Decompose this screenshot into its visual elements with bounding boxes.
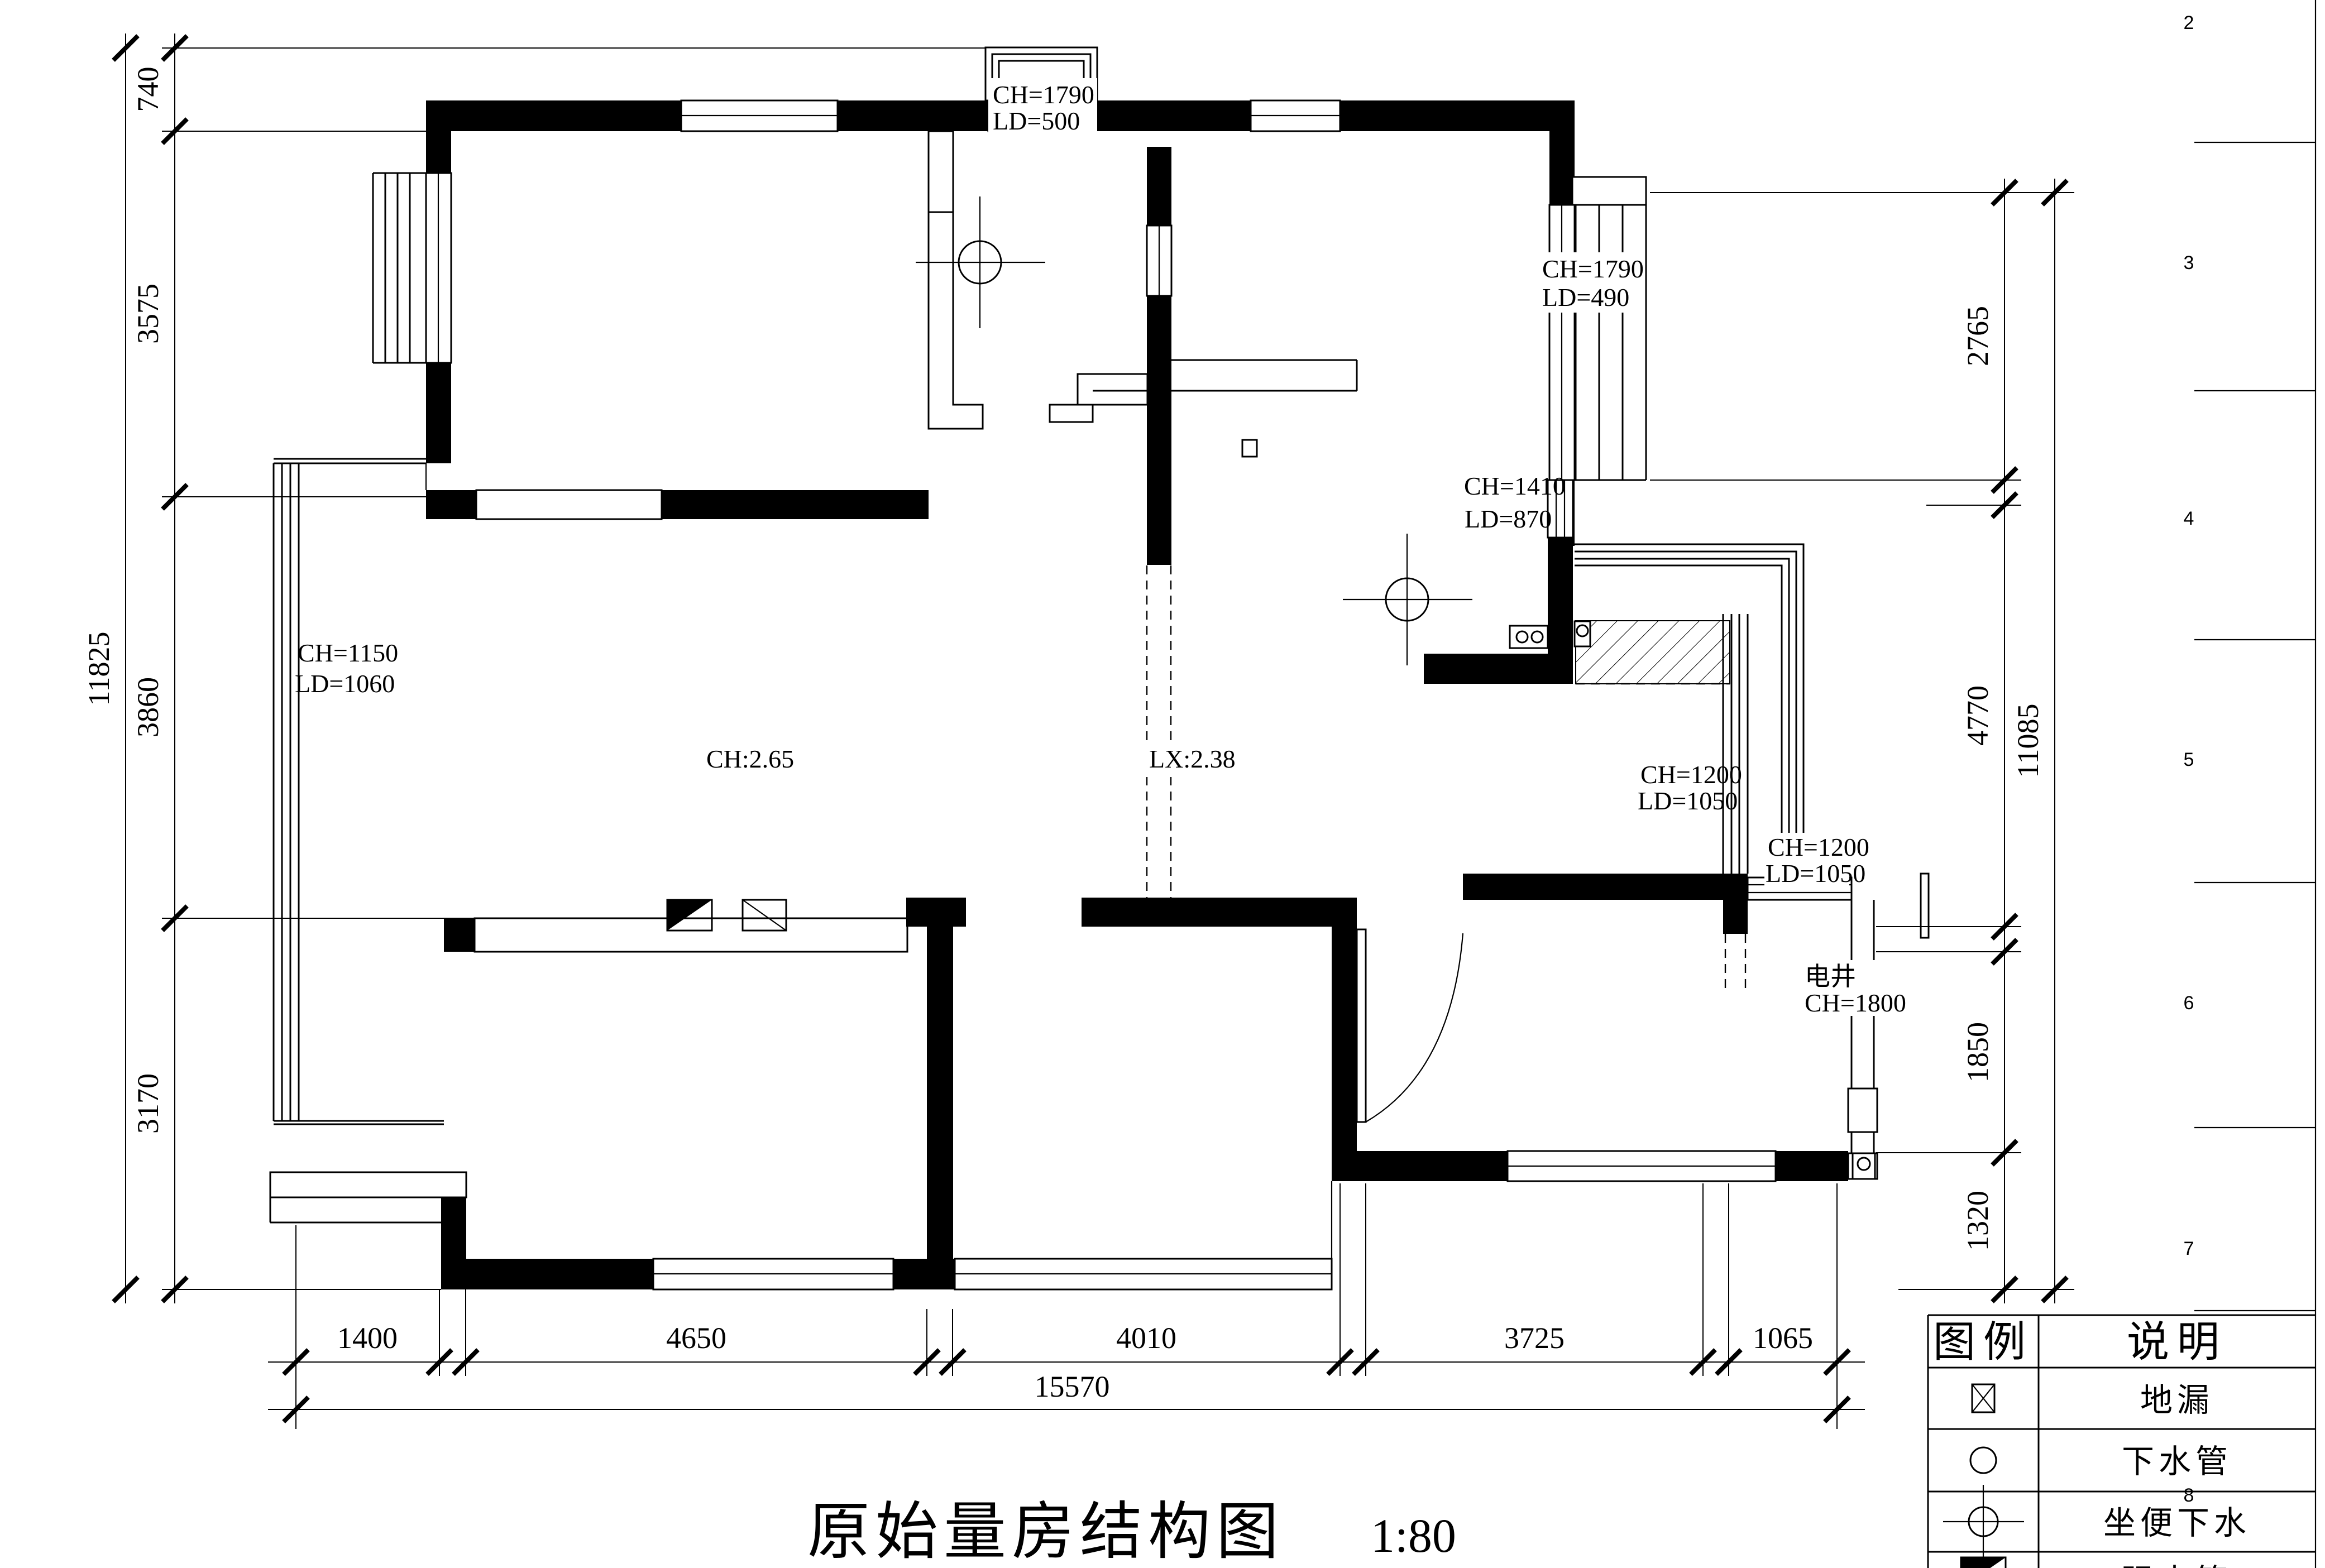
window-bottom-left	[653, 1259, 893, 1289]
window-top-left	[681, 100, 838, 131]
legend-row-label: 坐便下水	[2103, 1505, 2251, 1541]
label-window-top-center-ch: CH=1790	[993, 80, 1094, 109]
legend-header-symbol: 图例	[1933, 1319, 2034, 1366]
legend-row-label: 强电箱	[2122, 1563, 2232, 1568]
dim-label: 1400	[337, 1321, 398, 1355]
dim-label: 3860	[131, 677, 165, 737]
label-window-left-ld: LD=1060	[295, 669, 395, 698]
dim-label: 1065	[1753, 1321, 1813, 1355]
sheet-row-number: 2	[2184, 12, 2194, 33]
sheet-row-number: 4	[2184, 508, 2194, 529]
dim-label: 3725	[1504, 1321, 1565, 1355]
sheet-row-number: 7	[2184, 1238, 2194, 1259]
sheet-row-number: 5	[2184, 749, 2194, 770]
window-right-bay-wall	[1549, 205, 1575, 480]
dim-label: 1320	[1961, 1191, 1994, 1251]
dim-label: 4010	[1116, 1321, 1176, 1355]
dim-label: 1850	[1961, 1022, 1994, 1082]
dim-label: 4650	[666, 1321, 726, 1355]
label-shaft-ch: CH=1800	[1805, 989, 1906, 1017]
balcony-slider	[955, 1259, 1332, 1289]
legend-row-label: 地漏	[2140, 1382, 2214, 1418]
label-window-bedroom2-ld: LD=1050	[1766, 859, 1865, 888]
dim-label: 3170	[131, 1073, 165, 1134]
label-window-top-center-ld: LD=500	[993, 107, 1080, 135]
window-bedroom2-south	[1508, 1151, 1776, 1181]
label-ceiling-height: CH:2.65	[706, 745, 794, 773]
drain-box-2	[1853, 1153, 1875, 1179]
label-window-top-right-ld: LD=490	[1542, 283, 1629, 311]
legend-header-desc: 说明	[2127, 1319, 2227, 1366]
drain-box-1	[1575, 621, 1590, 646]
label-window-bedroom2-ch: CH=1200	[1768, 833, 1869, 861]
sheet-row-number: 6	[2184, 992, 2194, 1014]
dim-label: 4770	[1961, 685, 1994, 746]
window-bath-wall	[1147, 226, 1171, 296]
label-shaft-name: 电井	[1805, 962, 1856, 991]
dim-label: 2765	[1961, 306, 1994, 366]
label-window-kitchen-ld: LD=870	[1465, 505, 1552, 533]
legend-row-label: 下水管	[2122, 1444, 2232, 1480]
hatched-area	[1576, 621, 1730, 684]
dim-total: 11825	[82, 632, 116, 706]
floorplan-drawing: 740 3575 3860 3170 11825 2765 4770 1850 …	[0, 0, 2325, 1568]
label-window-balcony-ld: LD=1050	[1638, 787, 1738, 815]
window-top-right	[1251, 100, 1340, 131]
page-title: 原始量房结构图	[807, 1498, 1284, 1567]
window-left-upper	[426, 173, 451, 363]
drawing-scale: 1:80	[1371, 1509, 1456, 1562]
dim-label: 3575	[131, 284, 165, 344]
dim-label: 740	[131, 67, 165, 112]
dim-total: 11085	[2011, 704, 2045, 778]
label-window-kitchen-ch: CH=1410	[1464, 472, 1566, 500]
sheet-row-number: 3	[2184, 252, 2194, 274]
label-beam-height: LX:2.38	[1149, 745, 1236, 773]
label-window-top-right-ch: CH=1790	[1542, 255, 1644, 283]
label-window-left-ch: CH=1150	[298, 639, 398, 667]
sheet-row-number: 8	[2184, 1485, 2194, 1506]
dim-total: 15570	[1035, 1370, 1110, 1403]
label-window-balcony-ch: CH=1200	[1640, 760, 1742, 789]
